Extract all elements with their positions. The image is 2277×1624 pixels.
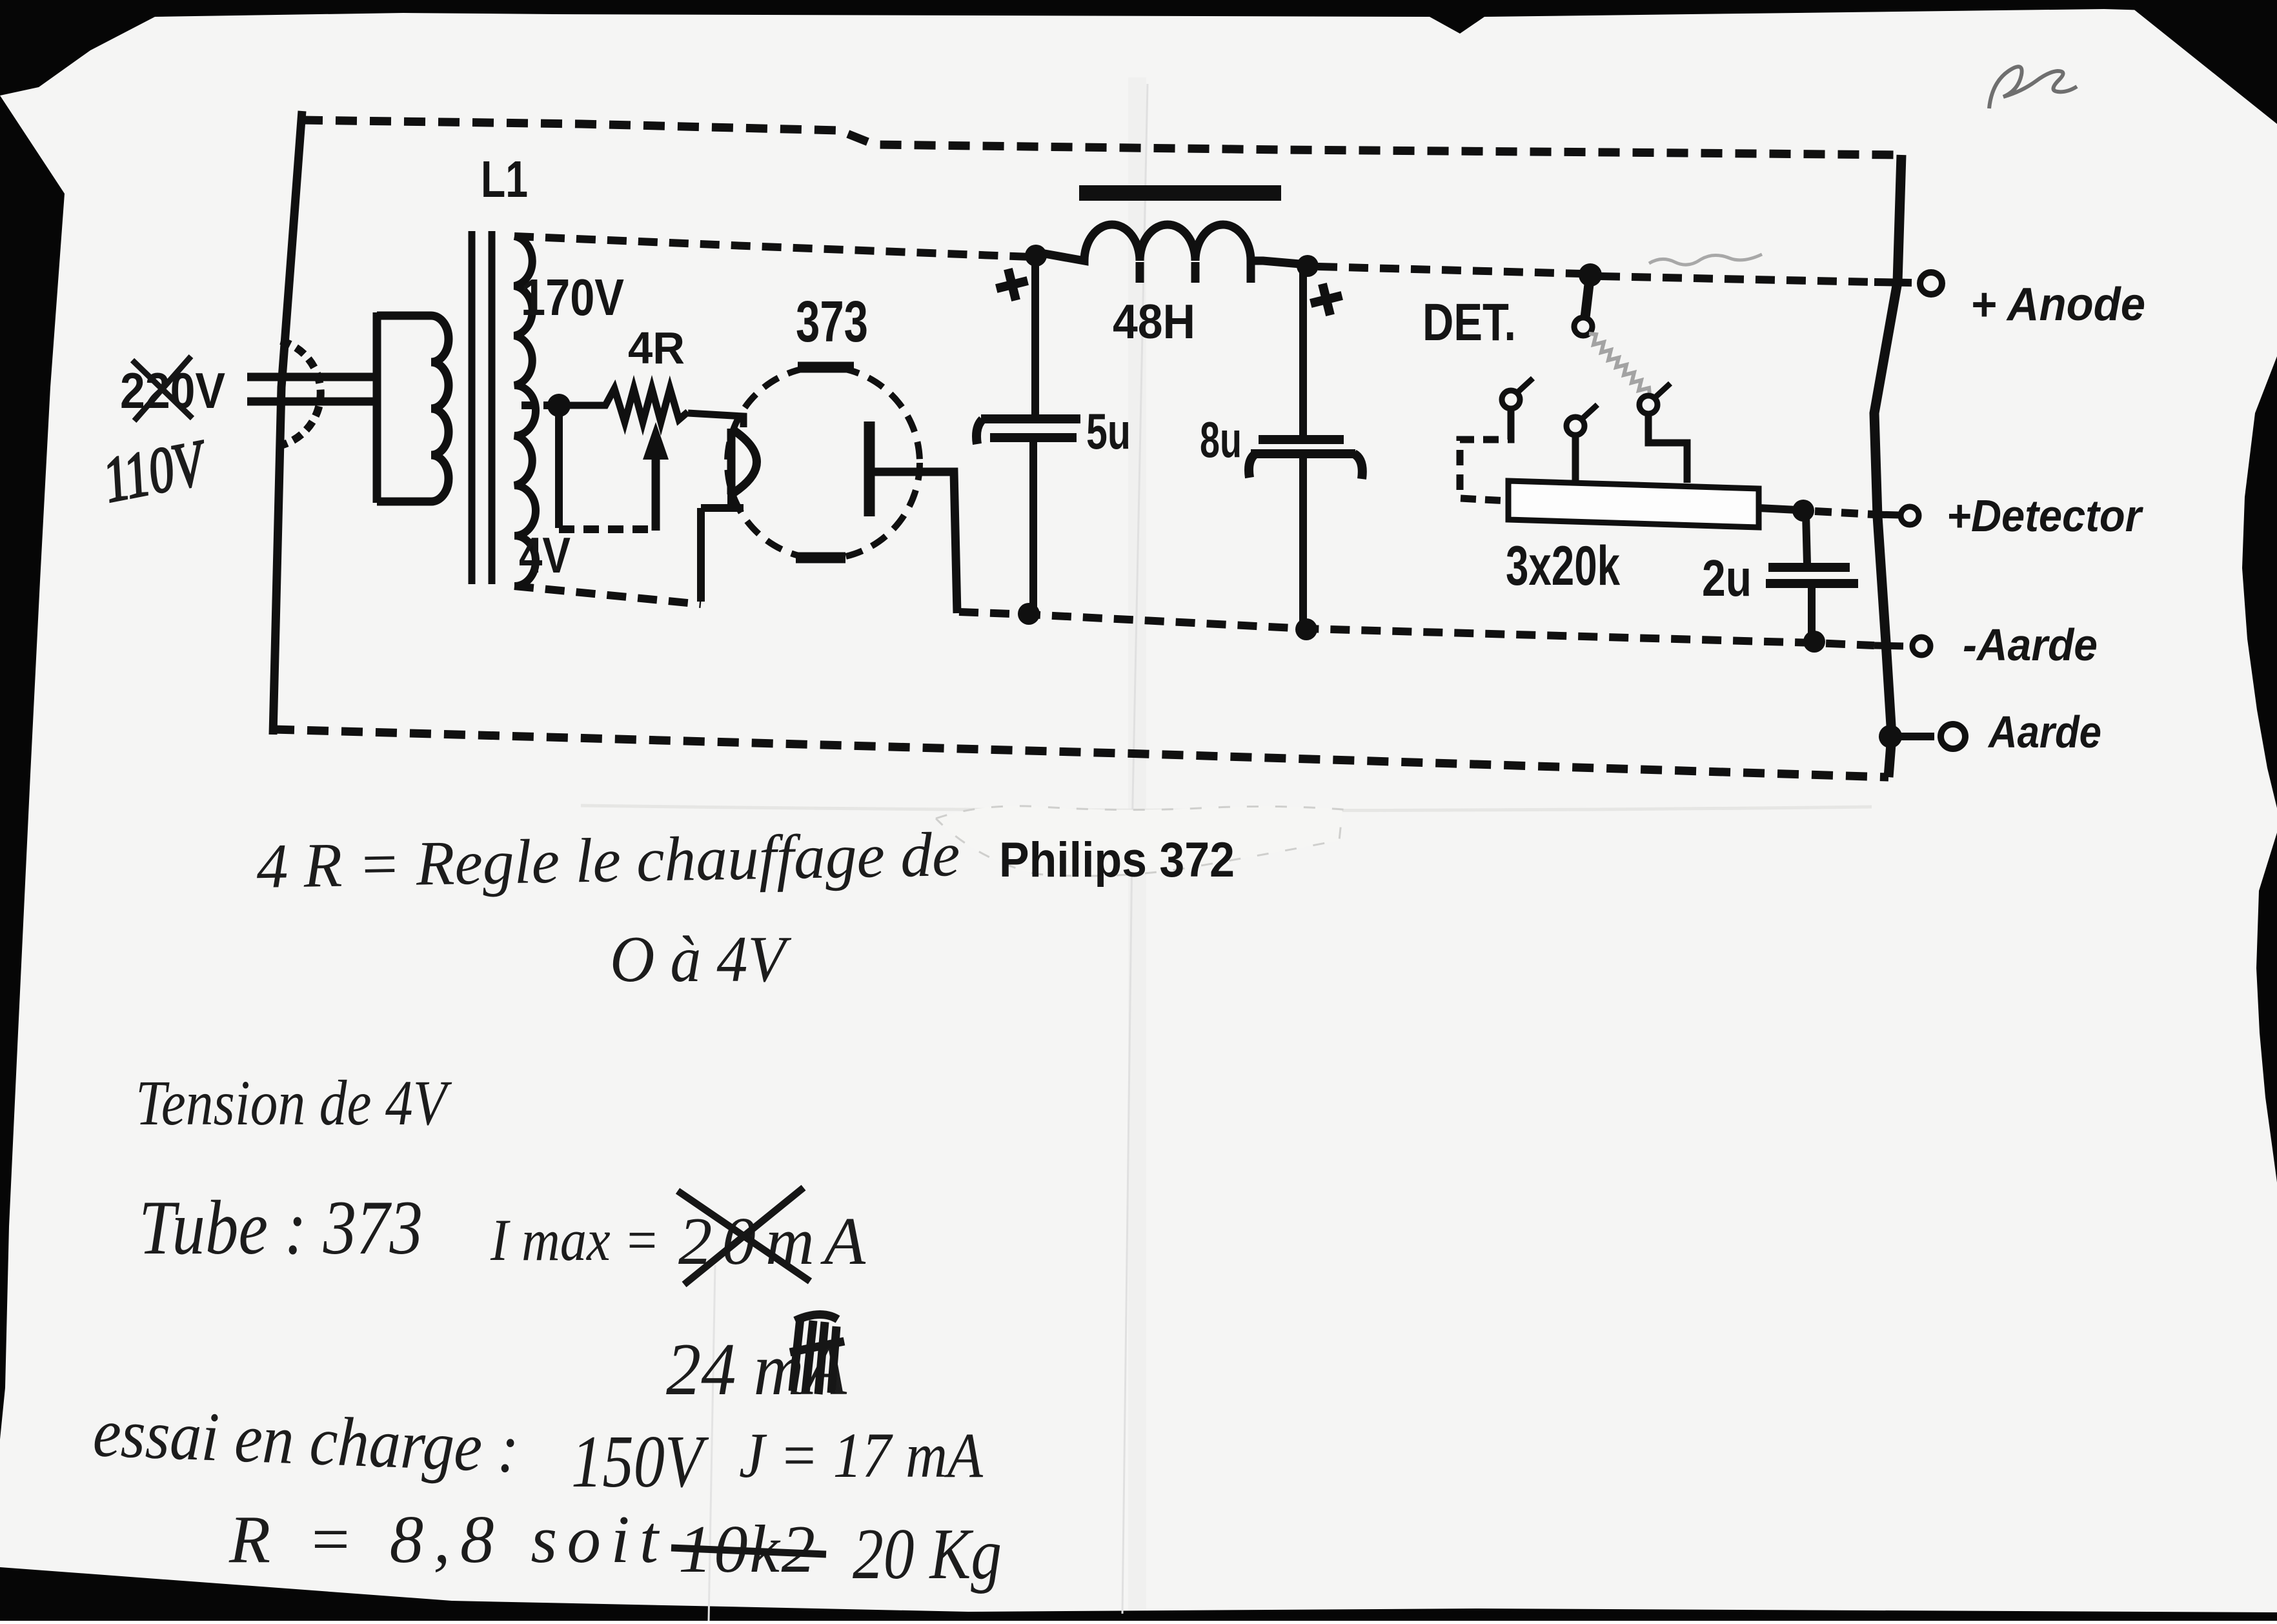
svg-text:-Aarde: -Aarde	[1963, 620, 2098, 670]
svg-text:2u: 2u	[1702, 549, 1752, 607]
svg-text:4V: 4V	[519, 527, 571, 584]
svg-text:Tube : 373: Tube : 373	[139, 1184, 423, 1270]
svg-text:8u: 8u	[1200, 411, 1242, 468]
svg-text:DET.: DET.	[1422, 293, 1516, 352]
svg-text:R = 8,8 soit: R = 8,8 soit	[228, 1501, 660, 1577]
svg-text:J = 17 mA: J = 17 mA	[739, 1419, 984, 1491]
svg-text:4R: 4R	[628, 323, 685, 373]
svg-text:Tension de 4V: Tension de 4V	[136, 1067, 452, 1139]
svg-text:4 R = Regle le chauffage de: 4 R = Regle le chauffage de	[256, 820, 960, 902]
svg-text:3x20k: 3x20k	[1506, 535, 1620, 597]
svg-text:5u: 5u	[1086, 403, 1131, 460]
svg-text:Philips 372: Philips 372	[999, 833, 1235, 888]
svg-text:20 Kg: 20 Kg	[853, 1514, 1002, 1594]
svg-text:170V: 170V	[521, 269, 624, 326]
svg-text:48H: 48H	[1113, 294, 1195, 349]
svg-text:150V: 150V	[571, 1421, 709, 1503]
svg-text:373: 373	[796, 290, 868, 354]
svg-text:essai en charge :: essai en charge :	[92, 1394, 520, 1487]
svg-text:Aarde: Aarde	[1987, 707, 2101, 757]
svg-text:L1: L1	[481, 150, 528, 208]
svg-text:I max =: I max =	[490, 1207, 660, 1273]
svg-text:+ Anode: + Anode	[1970, 279, 2145, 330]
svg-text:O à 4V: O à 4V	[610, 923, 792, 996]
svg-text:+Detector: +Detector	[1947, 491, 2143, 541]
svg-text:220V: 220V	[120, 362, 225, 419]
